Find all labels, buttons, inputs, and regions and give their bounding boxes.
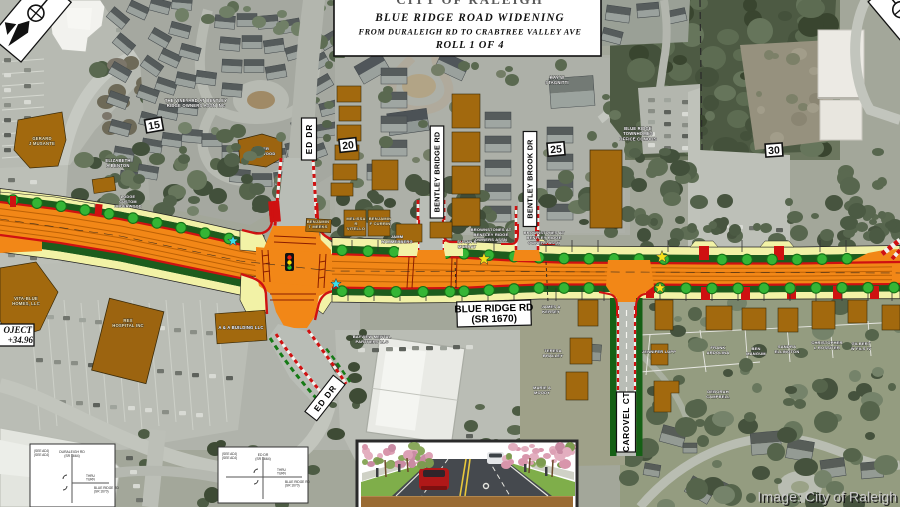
svg-text:VITELLO: VITELLO — [347, 226, 365, 231]
svg-text:Image: City of Raleigh: Image: City of Raleigh — [757, 490, 897, 506]
svg-text:J MUSANTE: J MUSANTE — [29, 141, 55, 146]
svg-text:ROLL 1 OF 4: ROLL 1 OF 4 — [435, 40, 505, 51]
svg-text:TURN: TURN — [86, 478, 96, 482]
svg-text:OJECT: OJECT — [3, 325, 32, 335]
svg-text:UNDERWOOD: UNDERWOOD — [114, 205, 142, 209]
svg-text:(SR 1670): (SR 1670) — [94, 490, 109, 494]
svg-text:CAROVEL CT: CAROVEL CT — [621, 392, 631, 453]
svg-text:(SR 1670): (SR 1670) — [285, 484, 300, 488]
svg-text:30: 30 — [768, 144, 781, 157]
svg-text:(SEE ADJ): (SEE ADJ) — [34, 453, 49, 457]
svg-text:20: 20 — [342, 139, 355, 152]
svg-text:OWNERS ASSN: OWNERS ASSN — [475, 237, 507, 242]
svg-text:BLUE RIDGE ROAD WIDENING: BLUE RIDGE ROAD WIDENING — [374, 12, 564, 24]
svg-text:MANGUM: MANGUM — [746, 351, 766, 356]
svg-text:OFFICE CONDOS: OFFICE CONDOS — [619, 136, 657, 141]
svg-text:KERSEY: KERSEY — [542, 309, 560, 314]
svg-text:(SR 1664): (SR 1664) — [255, 457, 270, 461]
svg-text:STAGNITTI: STAGNITTI — [545, 80, 569, 85]
svg-text:RIDGE OWNERS ASSN INC: RIDGE OWNERS ASSN INC — [167, 103, 226, 108]
svg-text:ED DR: ED DR — [305, 124, 314, 154]
svg-text:LODGE: LODGE — [121, 195, 136, 199]
svg-text:A BENTON: A BENTON — [106, 163, 129, 168]
svg-text:ELLINGTON: ELLINGTON — [775, 349, 800, 354]
svg-text:HAMMERBERG: HAMMERBERG — [381, 239, 413, 244]
svg-text:CUSTOM: CUSTOM — [119, 200, 137, 204]
svg-text:TURN: TURN — [277, 472, 287, 476]
svg-text:(SR 1670): (SR 1670) — [471, 313, 517, 325]
svg-text:PARTNERS LLC: PARTNERS LLC — [356, 339, 389, 344]
svg-text:+34.96: +34.96 — [8, 335, 34, 345]
svg-text:HOMES, LLC: HOMES, LLC — [12, 301, 40, 306]
svg-text:MURRAY: MURRAY — [458, 244, 477, 249]
svg-text:T MEEKS: T MEEKS — [308, 224, 327, 229]
svg-text:W FILS IV: W FILS IV — [851, 346, 871, 351]
svg-text:FROM DURALEIGH RD TO CRABT: FROM DURALEIGH RD TO CRABTREE VALLEY AVE — [357, 28, 581, 37]
svg-text:A & A BUILDING LLC: A & A BUILDING LLC — [218, 325, 263, 330]
svg-text:HOSPITAL INC: HOSPITAL INC — [112, 323, 144, 328]
svg-text:(SEE ADJ): (SEE ADJ) — [222, 456, 237, 460]
svg-text:15: 15 — [147, 119, 161, 133]
svg-text:BENTLEY BROOK DR: BENTLEY BROOK DR — [526, 139, 535, 219]
svg-text:CITY OF RALEIGH: CITY OF RALEIGH — [396, 0, 544, 7]
svg-text:ARDOLINA: ARDOLINA — [707, 350, 730, 355]
svg-text:BENTLEY BRIDGE RD: BENTLEY BRIDGE RD — [433, 132, 442, 213]
svg-text:L ROSSITER: L ROSSITER — [814, 345, 840, 350]
svg-text:(SR 1664): (SR 1664) — [64, 454, 79, 458]
svg-text:OWNERS ASSN: OWNERS ASSN — [528, 240, 560, 245]
svg-text:MOODY: MOODY — [534, 390, 550, 395]
svg-text:F CURRIN: F CURRIN — [370, 221, 391, 226]
svg-text:25: 25 — [550, 143, 563, 156]
svg-text:JENNIFER LUPP: JENNIFER LUPP — [642, 349, 676, 354]
svg-text:BRALLEY: BRALLEY — [543, 353, 563, 358]
svg-text:CAMPBELL: CAMPBELL — [706, 394, 730, 399]
